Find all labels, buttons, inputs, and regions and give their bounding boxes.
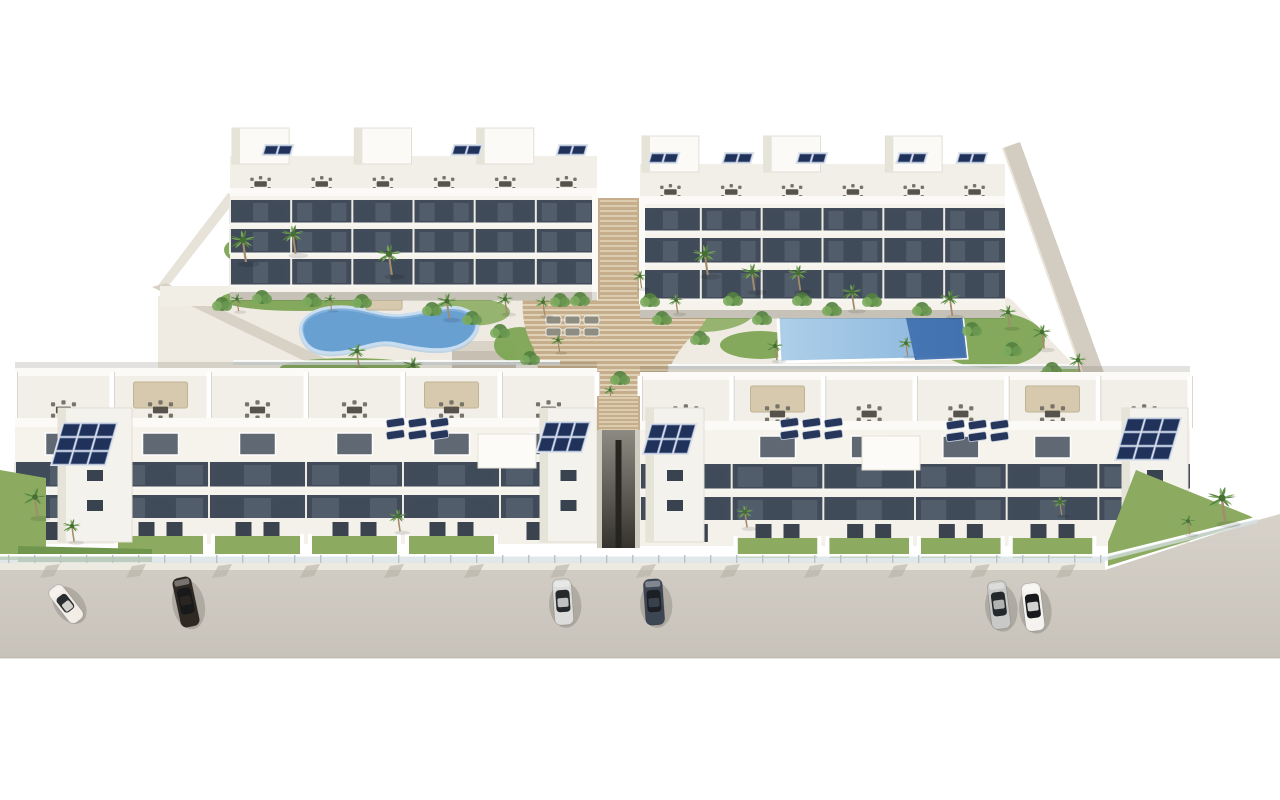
palm-crown	[773, 344, 777, 348]
palm-shadow	[946, 315, 964, 320]
window-glass	[341, 465, 368, 485]
solar-panel-array	[555, 144, 588, 156]
window-glass	[331, 232, 346, 251]
fence-post	[372, 555, 373, 563]
rear-left-building	[230, 128, 597, 300]
roof-chair	[267, 178, 270, 181]
sun-lounger	[565, 328, 580, 336]
palm-crown	[444, 298, 449, 303]
window-glass	[576, 203, 591, 221]
palm-crown	[1186, 519, 1190, 523]
window-glass	[542, 203, 557, 221]
window-glass	[312, 465, 339, 485]
window-glass	[481, 262, 496, 283]
roof-chair	[439, 402, 443, 406]
window-glass	[375, 203, 390, 221]
window-glass	[341, 498, 368, 518]
palm-shadow	[1038, 348, 1055, 353]
palm-crown	[1006, 310, 1010, 314]
window-glass	[314, 232, 329, 251]
window-glass	[437, 262, 452, 283]
roof-chair	[959, 404, 963, 408]
palm-shadow	[1057, 515, 1070, 519]
solar-panel	[467, 146, 481, 154]
window-glass	[542, 232, 557, 251]
cast-shadow	[15, 362, 597, 368]
solar-panel	[1139, 433, 1158, 445]
palm-shadow	[31, 516, 51, 521]
palm-shadow	[540, 315, 553, 319]
window-glass	[358, 203, 373, 221]
window-glass	[923, 241, 938, 261]
fence-post	[1074, 555, 1075, 563]
roof-chair	[320, 176, 323, 179]
roof-chair	[730, 184, 733, 187]
passage-wall	[592, 196, 598, 300]
palm-shadow	[238, 261, 260, 267]
roof-chair	[843, 186, 846, 189]
palm-shadow	[748, 290, 767, 295]
window-glass	[765, 500, 790, 520]
fence-post	[918, 555, 919, 563]
window-glass	[420, 203, 435, 221]
window-glass	[829, 211, 844, 229]
penthouse-shade	[354, 128, 362, 164]
palm-crown	[32, 494, 38, 500]
solar-panel	[61, 424, 80, 436]
window-glass	[921, 467, 946, 487]
window-glass	[741, 241, 756, 261]
roof-chair	[373, 178, 376, 181]
fence-post	[866, 555, 867, 563]
window-glass	[768, 211, 783, 229]
roof-table	[770, 411, 785, 418]
window-glass	[467, 498, 494, 518]
window-glass	[392, 262, 407, 283]
roof-chair	[434, 178, 437, 181]
window-glass	[948, 467, 973, 487]
window-glass	[802, 241, 817, 261]
sun-lounger	[584, 316, 599, 324]
roof-chair	[556, 178, 559, 181]
palm-crown	[355, 349, 360, 354]
palm-crown	[1076, 358, 1080, 362]
palm-shadow	[637, 288, 649, 291]
roof-divider-wall	[304, 372, 309, 426]
parapet	[640, 421, 1190, 430]
solar-panel	[912, 154, 926, 162]
alley-floor	[616, 440, 622, 548]
fence-post	[34, 555, 35, 563]
roof-chair	[782, 186, 785, 189]
window-glass	[884, 500, 909, 520]
window-glass	[297, 232, 312, 251]
fence-post	[736, 555, 737, 563]
window-glass	[270, 262, 285, 283]
window-glass	[967, 273, 982, 297]
fence-post	[892, 555, 893, 563]
window-glass	[680, 241, 695, 261]
palm-shadow	[289, 253, 309, 258]
solar-panel	[57, 438, 76, 450]
window-glass	[176, 498, 203, 518]
window-glass	[707, 211, 722, 229]
roof-chair	[921, 186, 924, 189]
roof-table	[499, 181, 511, 186]
window-glass	[270, 232, 285, 251]
scene-svg	[0, 0, 1280, 800]
solar-panel	[89, 452, 108, 464]
palm-shadow	[555, 352, 567, 355]
palm-crown	[795, 270, 800, 275]
window-glass	[481, 232, 496, 251]
alley-wall	[597, 430, 602, 548]
solar-panel	[724, 154, 738, 162]
roof-chair	[363, 414, 367, 418]
fence-post	[216, 555, 217, 563]
solar-panel	[1153, 447, 1172, 459]
roof-chair	[536, 402, 540, 406]
sun-lounger	[546, 328, 561, 336]
fence-post	[580, 555, 581, 563]
palm-shadow	[502, 313, 516, 317]
fence-post	[684, 555, 685, 563]
solar-panel	[1125, 419, 1144, 431]
window-glass	[680, 211, 695, 229]
penthouse-shade	[885, 136, 893, 172]
palm-crown	[503, 297, 507, 301]
window-glass	[244, 465, 271, 485]
roof-chair	[912, 184, 915, 187]
solar-panel	[79, 424, 98, 436]
solar-panel-array	[261, 144, 294, 156]
window-glass	[724, 241, 739, 261]
solar-panel	[898, 154, 912, 162]
solar-panel	[53, 452, 72, 464]
sidewalk	[0, 562, 1105, 570]
palm-shadow	[848, 309, 866, 314]
solar-panel	[93, 438, 112, 450]
window-glass	[862, 241, 877, 261]
roof-chair	[573, 178, 576, 181]
fence-post	[164, 555, 165, 563]
front-left-building	[13, 362, 600, 558]
window-glass	[950, 211, 965, 229]
window-glass	[768, 273, 783, 297]
window-glass	[559, 232, 574, 251]
palm-crown	[556, 338, 560, 342]
roof-chair	[964, 186, 967, 189]
window-glass	[906, 211, 921, 229]
roof-table	[560, 181, 572, 186]
roof-chair	[449, 400, 453, 404]
sun-lounger	[565, 316, 580, 324]
fence-post	[424, 555, 425, 563]
window-glass	[680, 273, 695, 297]
fence-post	[710, 555, 711, 563]
window-glass	[176, 465, 203, 485]
roof-chair	[158, 400, 162, 404]
palm-crown	[290, 231, 296, 237]
glass-fence	[0, 557, 1105, 563]
window-glass	[438, 498, 465, 518]
roof-divider-wall	[13, 372, 18, 426]
palm-shadow	[443, 318, 461, 323]
window-glass	[663, 273, 678, 297]
roof-chair	[973, 184, 976, 187]
front-garden-grass	[215, 536, 300, 556]
roof-chair	[245, 402, 249, 406]
roof-table	[953, 411, 968, 418]
pool-right-deep-end	[905, 313, 967, 360]
window-glass	[576, 262, 591, 283]
palm-crown	[1058, 500, 1062, 504]
fence-post	[138, 555, 139, 563]
window-glass	[829, 273, 844, 297]
window-glass	[498, 203, 513, 221]
roof-table	[153, 407, 168, 414]
roof-table	[1045, 411, 1060, 418]
roof-chair	[765, 406, 769, 410]
roof-chair	[169, 414, 173, 418]
window-glass	[244, 498, 271, 518]
window-glass	[792, 500, 817, 520]
tower-window	[87, 470, 103, 481]
roof-table	[847, 189, 859, 194]
window-glass	[984, 273, 999, 297]
roof-chair	[738, 186, 741, 189]
fence-post	[788, 555, 789, 563]
roof-chair	[311, 178, 314, 181]
palm-shadow	[903, 356, 916, 360]
fence-post	[60, 555, 61, 563]
solar-panel	[264, 146, 278, 154]
roof-chair	[342, 402, 346, 406]
window-glass	[506, 498, 533, 518]
solar-panel	[453, 146, 467, 154]
window-glass	[559, 203, 574, 221]
window-glass	[724, 211, 739, 229]
fence-post	[840, 555, 841, 563]
fence-post	[1100, 555, 1101, 563]
cast-shadow	[640, 366, 1190, 372]
roof-chair	[775, 404, 779, 408]
palm-shadow	[395, 531, 410, 535]
car-roof	[1027, 601, 1039, 611]
window-glass	[829, 500, 854, 520]
solar-panel	[1135, 447, 1154, 459]
fence-post	[996, 555, 997, 563]
roof-table	[862, 411, 877, 418]
window-glass	[741, 211, 756, 229]
roof-chair	[266, 414, 270, 418]
solar-panel	[1157, 433, 1176, 445]
window-glass	[515, 232, 530, 251]
roof-chair	[442, 176, 445, 179]
window-glass	[515, 203, 530, 221]
window-glass	[297, 203, 312, 221]
penthouse-shade	[764, 136, 772, 172]
roof-chair	[867, 404, 871, 408]
fence-post	[86, 555, 87, 563]
solar-panel	[972, 154, 986, 162]
window-glass	[297, 262, 312, 283]
roof-chair	[72, 402, 76, 406]
solar-panel-array	[641, 423, 697, 455]
window-glass	[498, 232, 513, 251]
solar-panel	[1121, 433, 1140, 445]
window-glass	[312, 498, 339, 518]
roof-table	[786, 189, 798, 194]
roof-chair	[799, 186, 802, 189]
roof-chair	[790, 184, 793, 187]
fence-post	[528, 555, 529, 563]
roof-chair	[677, 186, 680, 189]
roof-chair	[329, 178, 332, 181]
roof-table	[664, 189, 676, 194]
solar-panel-array	[535, 421, 591, 453]
solar-panel-array	[795, 152, 828, 164]
window-glass	[1040, 467, 1065, 487]
roof-chair	[495, 178, 498, 181]
roof-table	[725, 189, 737, 194]
window-glass	[236, 203, 251, 221]
window-glass	[948, 500, 973, 520]
window-glass	[147, 465, 174, 485]
fence-post	[606, 555, 607, 563]
roof-chair	[660, 186, 663, 189]
window-glass	[253, 232, 268, 251]
window-glass	[331, 203, 346, 221]
rear-right-building	[640, 136, 1005, 318]
palm-crown	[638, 274, 642, 278]
roof-chair	[565, 176, 568, 179]
window-glass	[862, 211, 877, 229]
roof-chair	[851, 184, 854, 187]
window-glass	[792, 467, 817, 487]
window-glass	[967, 241, 982, 261]
palm-shadow	[69, 541, 84, 545]
window-glass	[576, 232, 591, 251]
solar-panel	[558, 146, 572, 154]
window-glass	[765, 467, 790, 487]
window-glass	[906, 241, 921, 261]
roof-chair	[266, 402, 270, 406]
tower-window	[87, 500, 103, 511]
car-hood-highlight	[554, 581, 569, 588]
roof-chair	[451, 178, 454, 181]
palm-shadow	[1217, 521, 1241, 528]
window-glass	[215, 465, 242, 485]
roof-chair	[512, 178, 515, 181]
parapet	[640, 196, 1005, 204]
window-glass	[515, 262, 530, 283]
window-glass	[481, 203, 496, 221]
solar-panel-array	[450, 144, 483, 156]
palm-crown	[947, 295, 952, 300]
window-glass	[454, 262, 469, 283]
solar-panel-array	[721, 152, 754, 164]
window-glass	[975, 500, 1000, 520]
palm-crown	[328, 297, 331, 300]
window-glass	[273, 465, 300, 485]
front-garden-grass	[409, 536, 494, 556]
window-glass	[409, 465, 436, 485]
palm-crown	[608, 388, 611, 391]
window-glass	[559, 262, 574, 283]
fence-post	[242, 555, 243, 563]
fence-post	[268, 555, 269, 563]
fence-post	[632, 555, 633, 563]
roof-chair	[969, 406, 973, 410]
window-glass	[437, 203, 452, 221]
roof-chair	[460, 402, 464, 406]
window-glass	[270, 203, 285, 221]
window-glass	[454, 232, 469, 251]
roof-chair	[504, 176, 507, 179]
palm-crown	[240, 237, 246, 243]
window-glass	[889, 211, 904, 229]
window-glass	[253, 203, 268, 221]
roof-chair	[546, 400, 550, 404]
window-glass	[1013, 467, 1038, 487]
window-glass	[950, 273, 965, 297]
palm-crown	[541, 300, 545, 304]
roof-chair	[61, 400, 65, 404]
roof-table	[908, 189, 920, 194]
window-glass	[542, 262, 557, 283]
roof-table	[438, 181, 450, 186]
palm-crown	[674, 298, 678, 302]
tower-window	[667, 500, 683, 511]
solar-panel	[75, 438, 94, 450]
window-glass	[906, 273, 921, 297]
palm-shadow	[384, 274, 405, 280]
fence-post	[1048, 555, 1049, 563]
window-glass	[437, 232, 452, 251]
glass-fence-rail	[0, 554, 1105, 557]
window-glass	[857, 500, 882, 520]
window-glass	[829, 241, 844, 261]
window-glass	[984, 241, 999, 261]
palm-shadow	[1005, 327, 1020, 331]
roof-chair	[878, 406, 882, 410]
palm-crown	[1218, 494, 1225, 501]
roof-divider-wall	[498, 372, 503, 426]
window-glass	[314, 203, 329, 221]
window-glass	[498, 262, 513, 283]
window-glass	[738, 500, 763, 520]
window-glass	[215, 498, 242, 518]
facade-recess	[1035, 436, 1071, 458]
window-glass	[663, 211, 678, 229]
palm-shadow	[234, 311, 246, 314]
fence-post	[8, 555, 9, 563]
roof-chair	[51, 414, 55, 418]
roof-chair	[721, 186, 724, 189]
sun-lounger	[584, 328, 599, 336]
roof-chair	[1040, 406, 1044, 410]
roof-chair	[460, 414, 464, 418]
window-glass	[802, 211, 817, 229]
window-glass	[785, 241, 800, 261]
roof-chair	[255, 400, 259, 404]
penthouse	[477, 128, 534, 164]
palm-crown	[743, 510, 747, 514]
roof-chair	[148, 414, 152, 418]
fence-post	[320, 555, 321, 563]
roof-divider-wall	[207, 372, 212, 426]
